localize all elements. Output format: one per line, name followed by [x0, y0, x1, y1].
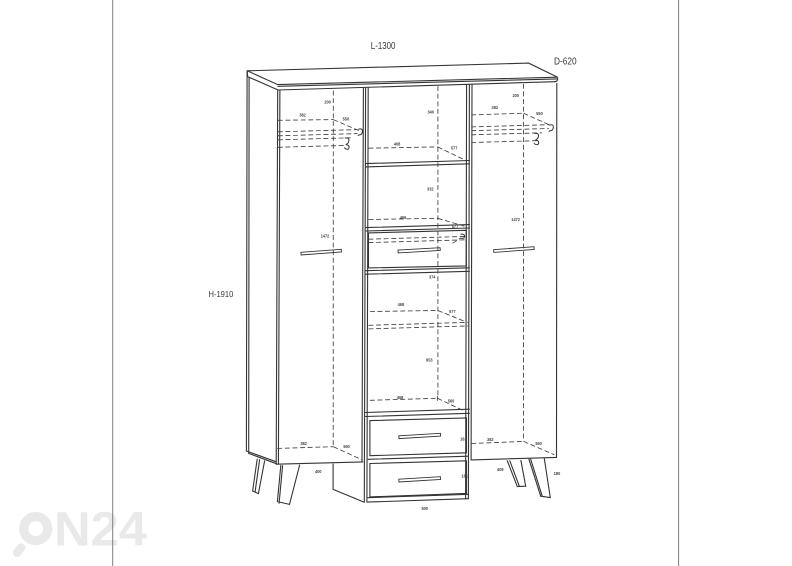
- svg-text:468: 468: [397, 395, 404, 400]
- svg-text:340: 340: [427, 110, 434, 115]
- svg-text:550: 550: [535, 441, 542, 446]
- svg-text:382: 382: [492, 105, 499, 110]
- svg-text:577: 577: [451, 145, 458, 150]
- svg-text:409: 409: [497, 467, 504, 472]
- svg-text:953: 953: [426, 357, 433, 362]
- svg-text:577: 577: [449, 309, 456, 314]
- svg-text:500: 500: [421, 506, 428, 511]
- svg-text:180: 180: [554, 471, 561, 476]
- svg-text:466: 466: [400, 215, 407, 220]
- svg-text:408: 408: [394, 141, 401, 146]
- svg-text:N24: N24: [54, 504, 147, 557]
- svg-text:468: 468: [398, 302, 405, 307]
- svg-text:161: 161: [461, 474, 468, 479]
- svg-text:1472: 1472: [511, 217, 520, 222]
- svg-text:382: 382: [487, 437, 494, 442]
- svg-text:577: 577: [452, 224, 459, 229]
- svg-text:550: 550: [343, 116, 350, 121]
- svg-text:D-620: D-620: [554, 57, 577, 68]
- svg-text:374: 374: [429, 275, 436, 280]
- svg-text:332: 332: [427, 186, 434, 191]
- svg-text:382: 382: [299, 112, 306, 117]
- svg-text:400: 400: [315, 469, 322, 474]
- svg-text:382: 382: [300, 441, 307, 446]
- svg-text:560: 560: [448, 398, 455, 403]
- svg-text:161: 161: [460, 437, 467, 442]
- svg-text:L-1300: L-1300: [371, 41, 396, 52]
- svg-text:1472: 1472: [321, 233, 330, 238]
- svg-text:200: 200: [324, 99, 331, 104]
- svg-text:200: 200: [512, 93, 519, 98]
- svg-text:H-1910: H-1910: [209, 289, 234, 299]
- svg-text:550: 550: [343, 444, 350, 449]
- svg-text:550: 550: [536, 111, 543, 116]
